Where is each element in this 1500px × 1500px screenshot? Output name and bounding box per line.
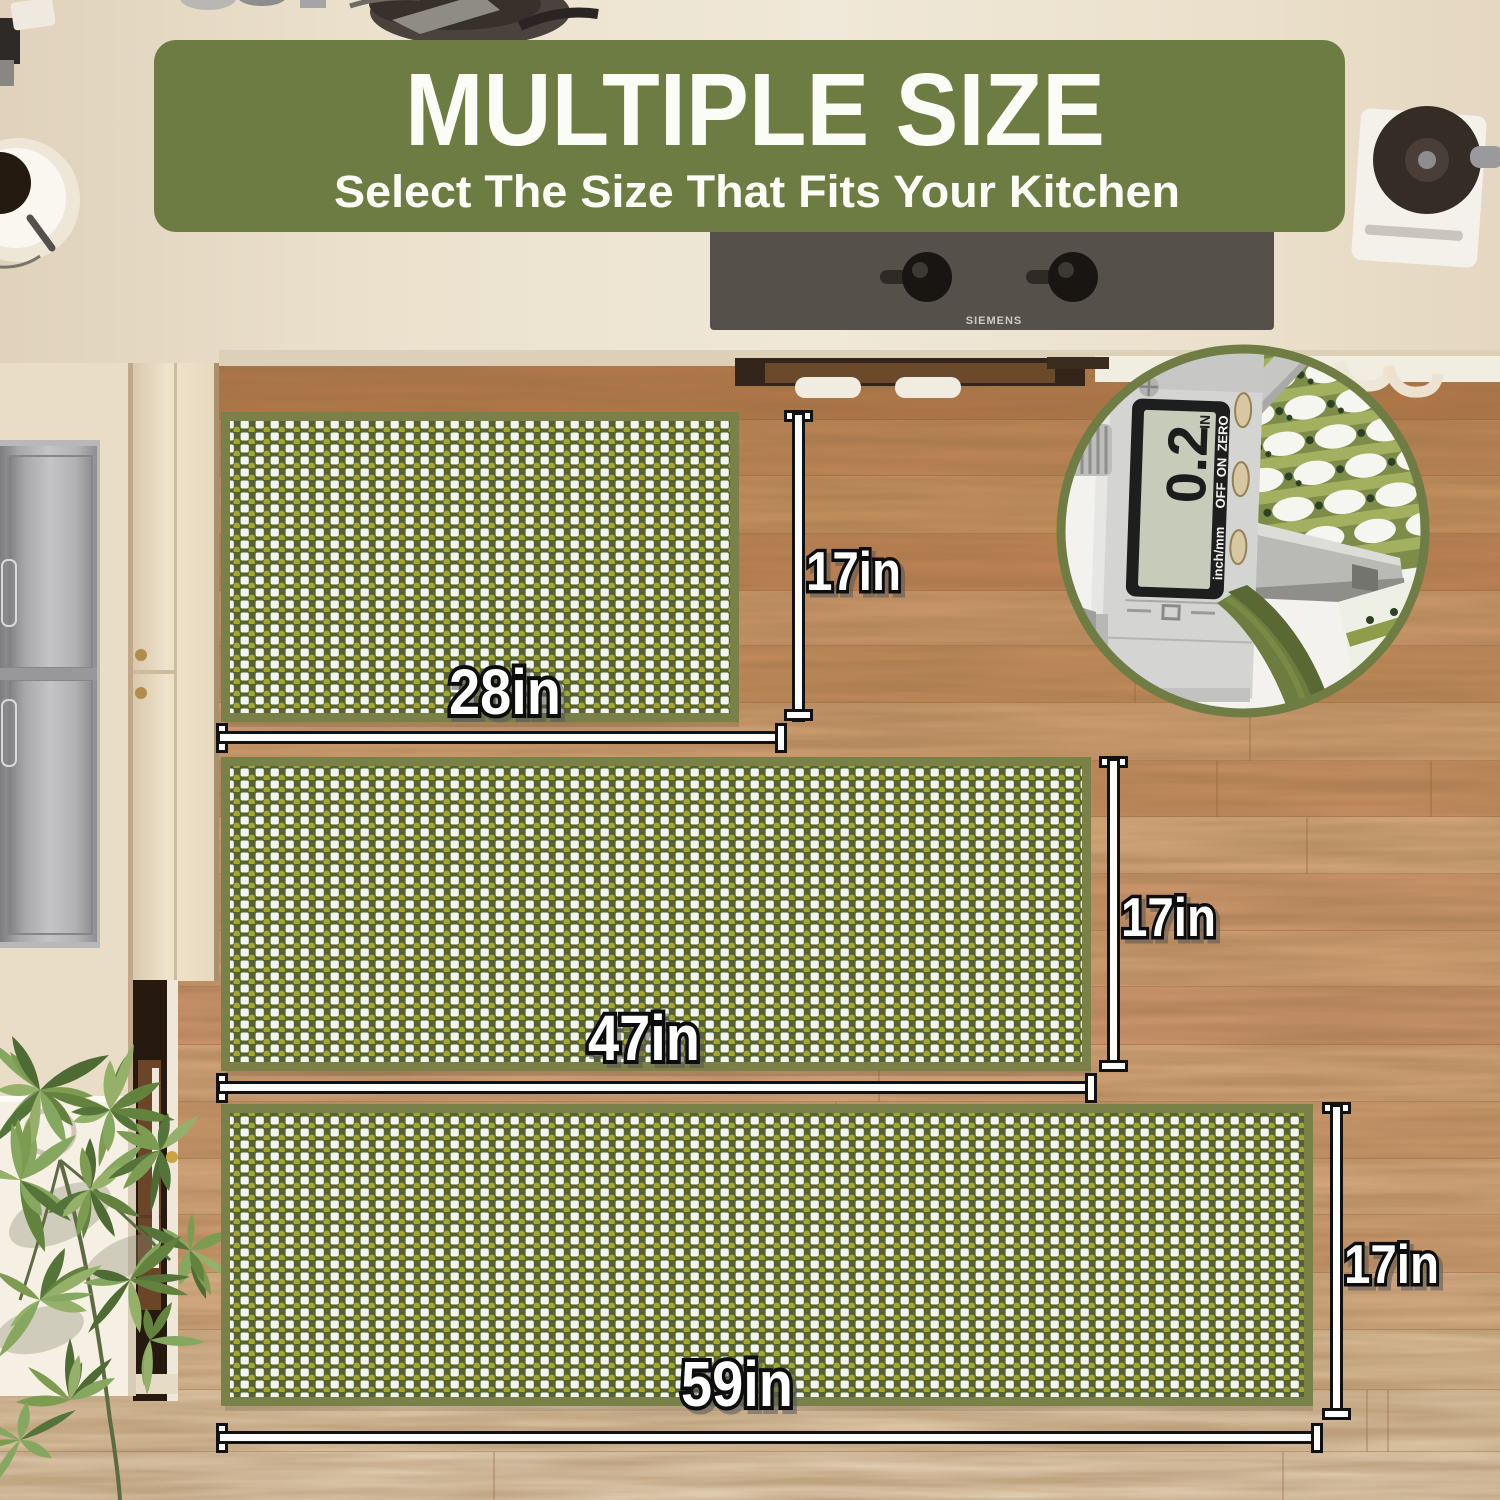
- svg-text:ZERO: ZERO: [1215, 415, 1231, 452]
- svg-text:17in: 17in: [806, 540, 901, 602]
- svg-text:47in: 47in: [588, 1002, 700, 1074]
- svg-text:IN: IN: [1196, 415, 1212, 430]
- svg-text:0.2: 0.2: [1154, 424, 1220, 504]
- svg-text:OFF: OFF: [1213, 482, 1229, 509]
- svg-text:17in: 17in: [1344, 1233, 1439, 1295]
- svg-text:SIEMENS: SIEMENS: [966, 315, 1023, 327]
- svg-text:MULTIPLE SIZE: MULTIPLE SIZE: [405, 52, 1105, 167]
- svg-text:28in: 28in: [449, 656, 561, 728]
- svg-text:Select The Size That Fits Your: Select The Size That Fits Your Kitchen: [334, 166, 1180, 217]
- svg-text:59in: 59in: [681, 1348, 793, 1420]
- svg-text:17in: 17in: [1121, 886, 1216, 948]
- svg-text:ON: ON: [1214, 457, 1230, 477]
- svg-text:inch/mm: inch/mm: [1210, 526, 1227, 580]
